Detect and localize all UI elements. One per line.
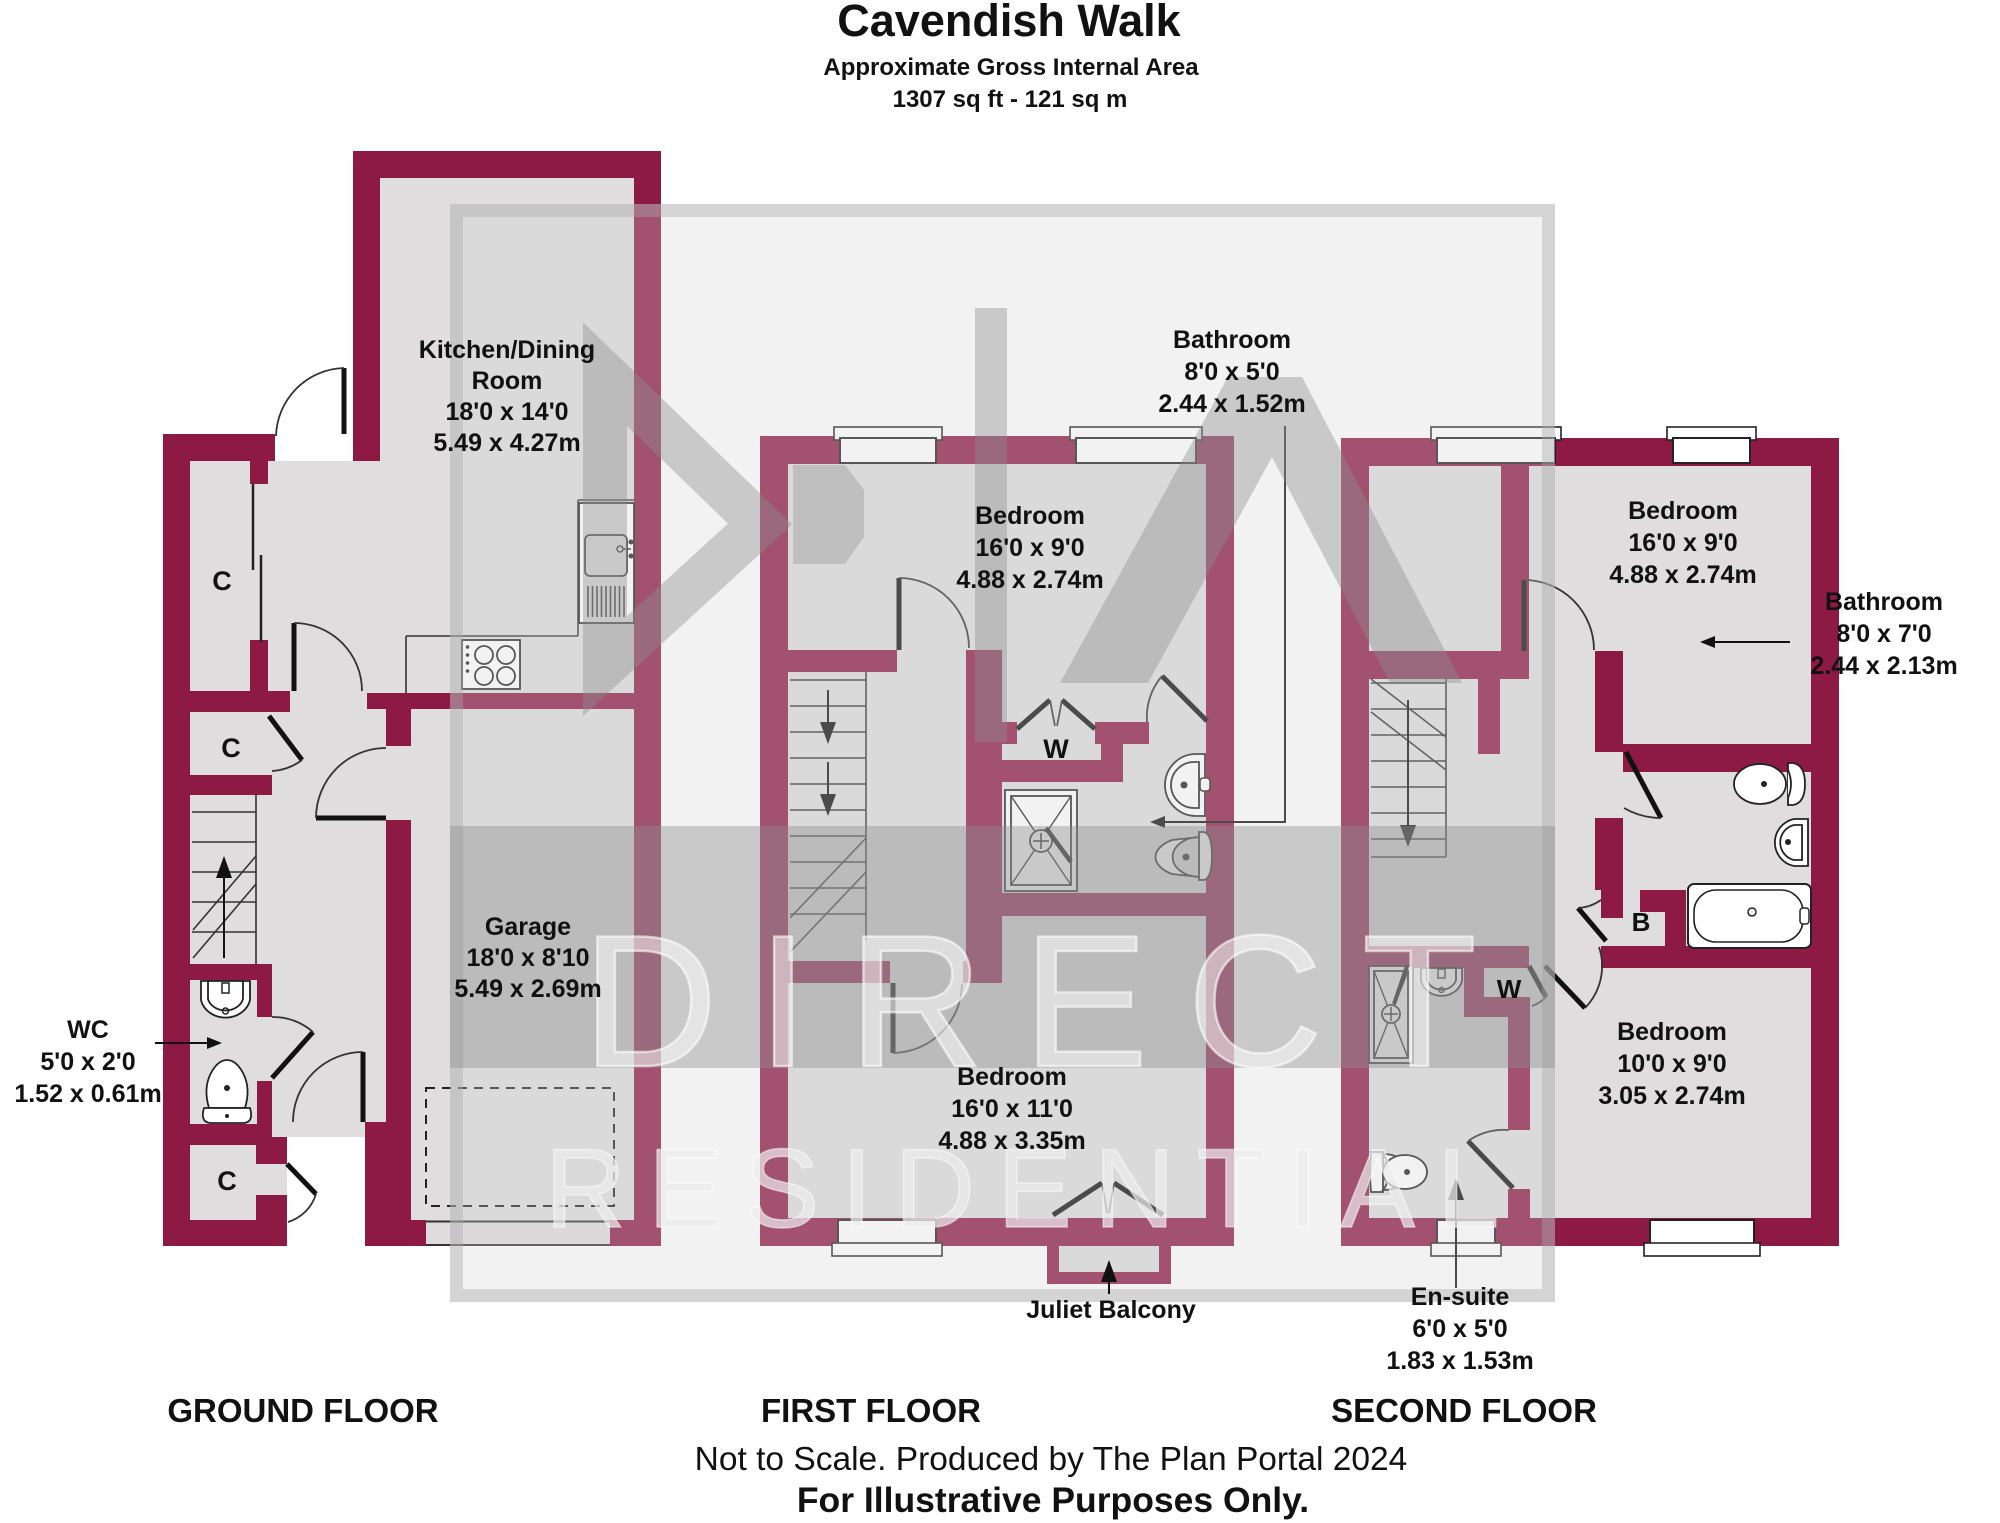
svg-text:10'0 x 9'0: 10'0 x 9'0 [1617, 1050, 1726, 1078]
svg-text:18'0 x 14'0: 18'0 x 14'0 [445, 398, 568, 426]
svg-text:FIRST FLOOR: FIRST FLOOR [761, 1392, 981, 1429]
svg-text:Not to Scale. Produced by The: Not to Scale. Produced by The Plan Porta… [695, 1441, 1408, 1478]
svg-text:18'0 x 8'10: 18'0 x 8'10 [466, 944, 589, 972]
svg-text:3.05 x 2.74m: 3.05 x 2.74m [1598, 1082, 1745, 1110]
svg-text:Cavendish Walk: Cavendish Walk [837, 0, 1181, 46]
svg-text:Room: Room [472, 367, 543, 395]
svg-text:16'0 x 9'0: 16'0 x 9'0 [1628, 529, 1737, 557]
svg-text:Approximate Gross Internal Are: Approximate Gross Internal Area [823, 54, 1199, 81]
svg-text:C: C [217, 1166, 237, 1196]
svg-text:Kitchen/Dining: Kitchen/Dining [419, 336, 595, 364]
svg-text:GROUND FLOOR: GROUND FLOOR [167, 1392, 438, 1429]
svg-text:Garage: Garage [485, 913, 571, 941]
svg-text:C: C [212, 566, 232, 596]
svg-text:1307 sq ft - 121 sq m: 1307 sq ft - 121 sq m [893, 86, 1128, 113]
svg-text:1.83 x 1.53m: 1.83 x 1.53m [1386, 1347, 1533, 1375]
svg-text:8'0 x 5'0: 8'0 x 5'0 [1184, 358, 1279, 386]
svg-text:For Illustrative Purposes Only: For Illustrative Purposes Only. [797, 1480, 1309, 1520]
svg-text:4.88 x 3.35m: 4.88 x 3.35m [938, 1127, 1085, 1155]
svg-text:1.52 x 0.61m: 1.52 x 0.61m [14, 1080, 161, 1108]
svg-text:W: W [1497, 974, 1522, 1004]
svg-text:5.49 x 4.27m: 5.49 x 4.27m [433, 429, 580, 457]
svg-text:2.44 x 2.13m: 2.44 x 2.13m [1810, 652, 1957, 680]
svg-text:4.88 x 2.74m: 4.88 x 2.74m [956, 566, 1103, 594]
svg-text:Bedroom: Bedroom [1617, 1018, 1727, 1046]
svg-text:C: C [221, 733, 241, 763]
svg-text:WC: WC [67, 1016, 109, 1044]
svg-text:B: B [1632, 907, 1651, 937]
svg-text:Juliet Balcony: Juliet Balcony [1026, 1296, 1196, 1324]
svg-text:16'0 x 11'0: 16'0 x 11'0 [951, 1095, 1073, 1123]
svg-text:En-suite: En-suite [1411, 1283, 1510, 1311]
svg-text:Bathroom: Bathroom [1173, 326, 1291, 354]
svg-text:SECOND FLOOR: SECOND FLOOR [1331, 1392, 1597, 1429]
svg-text:8'0 x 7'0: 8'0 x 7'0 [1836, 620, 1931, 648]
svg-text:W: W [1043, 734, 1069, 764]
svg-text:6'0 x 5'0: 6'0 x 5'0 [1412, 1315, 1507, 1343]
svg-text:16'0 x 9'0: 16'0 x 9'0 [975, 534, 1084, 562]
svg-text:4.88 x 2.74m: 4.88 x 2.74m [1609, 561, 1756, 589]
svg-text:Bathroom: Bathroom [1825, 588, 1943, 616]
svg-text:Bedroom: Bedroom [975, 502, 1085, 530]
svg-text:5'0 x 2'0: 5'0 x 2'0 [40, 1048, 135, 1076]
svg-text:5.49 x 2.69m: 5.49 x 2.69m [454, 975, 601, 1003]
svg-text:Bedroom: Bedroom [957, 1063, 1067, 1091]
svg-text:Bedroom: Bedroom [1628, 497, 1738, 525]
svg-text:2.44 x 1.52m: 2.44 x 1.52m [1158, 390, 1305, 418]
